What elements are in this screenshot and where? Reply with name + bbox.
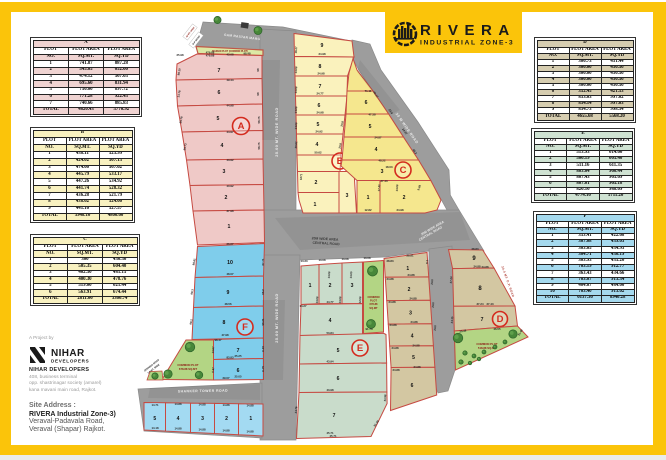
svg-text:0.97: 0.97 bbox=[211, 367, 215, 373]
svg-text:13.08: 13.08 bbox=[364, 256, 371, 260]
svg-text:NIHAR: NIHAR bbox=[51, 348, 85, 359]
svg-text:24.98: 24.98 bbox=[397, 208, 404, 212]
svg-text:1: 1 bbox=[249, 416, 252, 422]
svg-text:7: 7 bbox=[218, 68, 221, 74]
svg-text:14.08: 14.08 bbox=[294, 106, 299, 114]
svg-text:9.1: 9.1 bbox=[425, 259, 429, 264]
svg-text:13.08: 13.08 bbox=[315, 296, 320, 304]
svg-text:40.92: 40.92 bbox=[227, 184, 234, 188]
svg-text:5: 5 bbox=[317, 122, 320, 128]
svg-text:24.92: 24.92 bbox=[316, 130, 323, 134]
svg-text:3: 3 bbox=[201, 416, 204, 422]
svg-text:49.43: 49.43 bbox=[227, 78, 234, 82]
svg-text:25.00 MT. WIDE ROAD: 25.00 MT. WIDE ROAD bbox=[275, 107, 279, 156]
svg-text:1871: 1871 bbox=[299, 173, 304, 180]
svg-text:E: E bbox=[357, 343, 363, 354]
svg-text:37.24: 37.24 bbox=[477, 302, 484, 306]
svg-text:4: 4 bbox=[177, 416, 180, 422]
svg-text:SQ.MT: SQ.MT bbox=[369, 306, 378, 310]
svg-text:24.87: 24.87 bbox=[375, 136, 382, 140]
svg-text:71.11: 71.11 bbox=[365, 89, 372, 93]
svg-text:D: D bbox=[497, 314, 504, 325]
svg-text:43.98: 43.98 bbox=[327, 388, 334, 392]
svg-text:48.56: 48.56 bbox=[225, 302, 232, 306]
svg-text:3: 3 bbox=[346, 193, 349, 199]
svg-text:2: 2 bbox=[408, 287, 411, 293]
svg-text:C.15: C.15 bbox=[261, 346, 265, 352]
svg-text:5: 5 bbox=[217, 116, 220, 122]
svg-text:14.88: 14.88 bbox=[223, 429, 230, 433]
svg-text:7: 7 bbox=[333, 413, 336, 419]
svg-text:14.71: 14.71 bbox=[152, 403, 159, 407]
svg-text:3: 3 bbox=[351, 283, 354, 289]
svg-text:98.48: 98.48 bbox=[244, 52, 251, 56]
svg-text:24.77: 24.77 bbox=[317, 92, 324, 96]
svg-text:13.08: 13.08 bbox=[327, 271, 332, 279]
svg-text:1: 1 bbox=[367, 195, 370, 201]
svg-text:1: 1 bbox=[228, 224, 231, 230]
svg-text:45.71: 45.71 bbox=[330, 434, 337, 438]
svg-text:44.98: 44.98 bbox=[227, 104, 234, 108]
svg-text:INDUSTRIAL ZONE-3: INDUSTRIAL ZONE-3 bbox=[420, 40, 514, 47]
svg-text:24.0: 24.0 bbox=[431, 302, 435, 308]
svg-text:7: 7 bbox=[481, 317, 484, 323]
svg-text:48.07: 48.07 bbox=[227, 272, 234, 276]
svg-text:28.83: 28.83 bbox=[387, 259, 394, 263]
svg-text:98.21: 98.21 bbox=[261, 318, 265, 325]
svg-text:479.88: 479.88 bbox=[206, 51, 215, 55]
svg-text:13.08: 13.08 bbox=[319, 258, 326, 262]
svg-text:24.76: 24.76 bbox=[294, 406, 299, 414]
svg-text:98.2: 98.2 bbox=[261, 289, 265, 295]
svg-text:28.83: 28.83 bbox=[472, 247, 479, 251]
svg-text:7: 7 bbox=[319, 84, 322, 90]
svg-text:4: 4 bbox=[375, 147, 378, 153]
svg-text:47.38: 47.38 bbox=[369, 113, 376, 117]
svg-text:17.43: 17.43 bbox=[377, 184, 382, 192]
svg-text:27.43: 27.43 bbox=[381, 179, 388, 183]
svg-text:F: F bbox=[242, 322, 248, 333]
svg-text:678.88: 678.88 bbox=[370, 302, 378, 306]
svg-text:1: 1 bbox=[314, 202, 317, 208]
svg-text:1: 1 bbox=[406, 266, 409, 272]
svg-text:98: 98 bbox=[256, 92, 260, 96]
svg-text:50.62: 50.62 bbox=[315, 151, 322, 155]
svg-text:24.88: 24.88 bbox=[474, 265, 481, 269]
svg-text:14.88: 14.88 bbox=[199, 403, 206, 407]
svg-text:C.75: C.75 bbox=[261, 366, 265, 372]
svg-text:24.88: 24.88 bbox=[482, 265, 489, 269]
svg-text:24.15: 24.15 bbox=[450, 316, 455, 324]
svg-text:14.18: 14.18 bbox=[152, 426, 159, 430]
svg-text:13.08: 13.08 bbox=[395, 184, 400, 192]
svg-text:43.68: 43.68 bbox=[227, 53, 234, 57]
svg-text:24.88: 24.88 bbox=[414, 365, 421, 369]
svg-text:26.67: 26.67 bbox=[227, 242, 234, 246]
svg-text:43.94: 43.94 bbox=[327, 360, 334, 364]
svg-text:27.43: 27.43 bbox=[487, 302, 494, 306]
svg-text:4: 4 bbox=[221, 143, 224, 149]
svg-text:2: 2 bbox=[315, 180, 318, 186]
svg-text:41.98: 41.98 bbox=[383, 394, 388, 402]
svg-text:8: 8 bbox=[319, 64, 322, 70]
svg-text:6: 6 bbox=[337, 376, 340, 382]
svg-text:14.88: 14.88 bbox=[175, 402, 182, 406]
svg-text:37.24: 37.24 bbox=[449, 276, 454, 284]
svg-text:14.88: 14.88 bbox=[175, 427, 182, 431]
svg-text:16.27: 16.27 bbox=[294, 46, 299, 54]
svg-text:24.88: 24.88 bbox=[393, 368, 400, 372]
svg-text:47.98: 47.98 bbox=[222, 333, 229, 337]
svg-text:3: 3 bbox=[381, 169, 384, 175]
svg-text:5: 5 bbox=[337, 348, 340, 354]
svg-text:67.71: 67.71 bbox=[261, 258, 265, 265]
svg-text:13.08: 13.08 bbox=[342, 257, 349, 261]
svg-text:43.92: 43.92 bbox=[227, 158, 234, 162]
svg-text:678.88 SQ.MT: 678.88 SQ.MT bbox=[179, 367, 197, 371]
svg-text:14.88: 14.88 bbox=[247, 404, 254, 408]
svg-text:98: 98 bbox=[256, 68, 260, 72]
svg-text:5: 5 bbox=[369, 124, 372, 130]
svg-text:58.75: 58.75 bbox=[257, 116, 261, 123]
svg-text:10: 10 bbox=[227, 260, 233, 266]
svg-text:20.62: 20.62 bbox=[294, 141, 299, 149]
svg-text:58.75: 58.75 bbox=[257, 142, 261, 149]
svg-text:24.88: 24.88 bbox=[411, 320, 418, 324]
svg-text:4: 4 bbox=[329, 318, 332, 324]
svg-text:25.98: 25.98 bbox=[177, 53, 184, 57]
svg-text:4: 4 bbox=[411, 333, 414, 339]
svg-text:12.82: 12.82 bbox=[365, 208, 372, 212]
svg-text:6: 6 bbox=[218, 90, 221, 96]
svg-text:24.88: 24.88 bbox=[392, 346, 399, 350]
svg-text:46.55: 46.55 bbox=[494, 327, 501, 331]
svg-text:6: 6 bbox=[318, 103, 321, 109]
svg-text:14.88: 14.88 bbox=[199, 428, 206, 432]
svg-text:24.98: 24.98 bbox=[319, 52, 326, 56]
svg-text:14.27: 14.27 bbox=[300, 304, 307, 308]
svg-text:9: 9 bbox=[321, 43, 324, 49]
svg-text:14.08: 14.08 bbox=[294, 122, 299, 130]
svg-text:24.88: 24.88 bbox=[387, 277, 394, 281]
svg-text:24.88: 24.88 bbox=[413, 344, 420, 348]
svg-text:44.77: 44.77 bbox=[327, 300, 334, 304]
svg-text:24.88: 24.88 bbox=[410, 297, 417, 301]
svg-text:14.88: 14.88 bbox=[223, 403, 230, 407]
svg-text:14.33: 14.33 bbox=[301, 259, 308, 263]
svg-text:6: 6 bbox=[411, 383, 414, 389]
svg-text:1: 1 bbox=[309, 283, 312, 289]
svg-text:2: 2 bbox=[329, 283, 332, 289]
svg-text:12.08: 12.08 bbox=[358, 296, 363, 304]
svg-text:28.81: 28.81 bbox=[407, 254, 414, 258]
svg-text:25.05: 25.05 bbox=[235, 375, 242, 379]
svg-text:44.97: 44.97 bbox=[227, 130, 234, 134]
svg-text:53.84: 53.84 bbox=[327, 331, 334, 335]
svg-text:COMMON: COMMON bbox=[367, 295, 379, 299]
svg-text:PLOT: PLOT bbox=[370, 299, 377, 303]
svg-text:A: A bbox=[238, 121, 245, 132]
svg-text:2: 2 bbox=[225, 416, 228, 422]
svg-text:13.08: 13.08 bbox=[294, 66, 299, 74]
svg-text:6: 6 bbox=[237, 368, 240, 374]
svg-text:83.83: 83.83 bbox=[227, 356, 234, 360]
svg-text:48.22: 48.22 bbox=[379, 159, 386, 163]
svg-text:9: 9 bbox=[227, 290, 230, 296]
svg-text:C: C bbox=[400, 165, 407, 176]
svg-text:37.98: 37.98 bbox=[227, 209, 234, 213]
svg-text:24.98: 24.98 bbox=[317, 111, 324, 115]
svg-text:91.73: 91.73 bbox=[366, 327, 373, 331]
svg-text:13.67: 13.67 bbox=[211, 346, 216, 354]
svg-text:DEVELOPERS: DEVELOPERS bbox=[51, 359, 89, 364]
svg-text:3: 3 bbox=[409, 311, 412, 317]
svg-text:RIVERA: RIVERA bbox=[420, 22, 516, 39]
svg-text:25.25: 25.25 bbox=[235, 354, 242, 358]
svg-text:13.08: 13.08 bbox=[338, 296, 343, 304]
svg-text:2: 2 bbox=[403, 195, 406, 201]
svg-text:5: 5 bbox=[153, 416, 156, 422]
svg-text:13.00: 13.00 bbox=[349, 271, 354, 279]
svg-text:13.08: 13.08 bbox=[294, 86, 299, 94]
svg-text:3: 3 bbox=[223, 169, 226, 175]
svg-text:25.00 MT. WIDE ROAD: 25.00 MT. WIDE ROAD bbox=[275, 293, 279, 342]
svg-text:14.88: 14.88 bbox=[247, 430, 254, 434]
svg-text:6: 6 bbox=[365, 100, 368, 106]
svg-text:24.0: 24.0 bbox=[433, 325, 437, 331]
svg-text:24.98: 24.98 bbox=[318, 72, 325, 76]
svg-text:24.0: 24.0 bbox=[430, 279, 434, 285]
svg-text:5: 5 bbox=[412, 355, 415, 361]
svg-text:8: 8 bbox=[223, 320, 226, 326]
svg-text:4: 4 bbox=[316, 142, 319, 148]
svg-text:29.07: 29.07 bbox=[223, 376, 230, 380]
svg-text:2: 2 bbox=[225, 195, 228, 201]
svg-text:18.03: 18.03 bbox=[386, 165, 393, 169]
svg-text:24.88: 24.88 bbox=[389, 300, 396, 304]
svg-text:24.88: 24.88 bbox=[390, 323, 397, 327]
svg-text:24.88: 24.88 bbox=[408, 273, 415, 277]
svg-text:98.47: 98.47 bbox=[215, 338, 222, 342]
